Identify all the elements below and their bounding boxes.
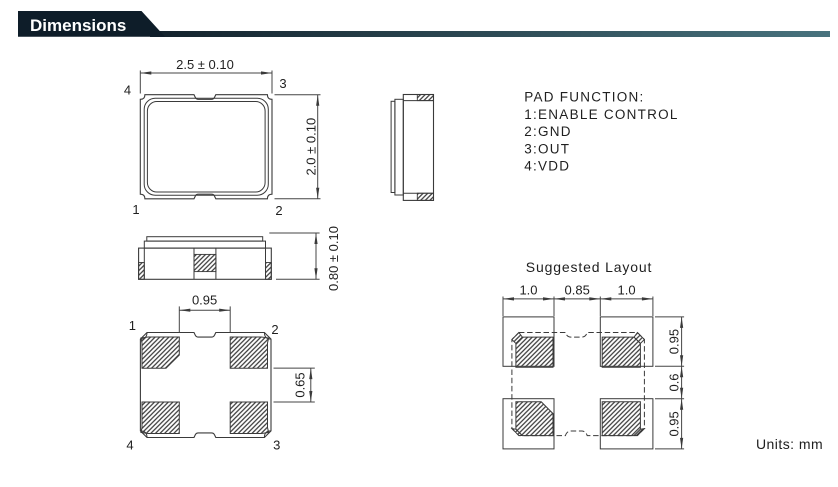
svg-text:3:OUT: 3:OUT (524, 141, 570, 156)
svg-text:0.95: 0.95 (192, 293, 217, 308)
svg-text:3: 3 (273, 438, 280, 453)
svg-text:2.0 ± 0.10: 2.0 ± 0.10 (303, 118, 318, 176)
svg-text:0.95: 0.95 (666, 329, 681, 354)
svg-text:PAD FUNCTION:: PAD FUNCTION: (524, 90, 644, 105)
svg-text:0.95: 0.95 (666, 411, 681, 436)
svg-text:Suggested Layout: Suggested Layout (526, 259, 652, 275)
svg-text:0.85: 0.85 (565, 283, 590, 298)
svg-text:2: 2 (275, 203, 282, 218)
svg-text:1.0: 1.0 (519, 283, 537, 298)
svg-text:2:GND: 2:GND (524, 124, 572, 139)
svg-text:1:ENABLE CONTROL: 1:ENABLE CONTROL (524, 107, 678, 122)
svg-text:4: 4 (124, 82, 131, 97)
svg-text:0.80 ± 0.10: 0.80 ± 0.10 (326, 226, 341, 291)
svg-text:0.6: 0.6 (666, 373, 681, 391)
svg-text:Units: mm: Units: mm (756, 436, 823, 452)
svg-text:4: 4 (126, 437, 133, 452)
svg-text:4:VDD: 4:VDD (524, 159, 570, 174)
svg-text:Dimensions: Dimensions (30, 16, 126, 35)
svg-text:3: 3 (279, 76, 286, 91)
svg-text:2: 2 (271, 322, 278, 337)
svg-text:0.65: 0.65 (292, 372, 307, 397)
svg-text:1: 1 (132, 202, 139, 217)
svg-text:2.5 ± 0.10: 2.5 ± 0.10 (176, 57, 234, 72)
svg-text:1.0: 1.0 (618, 283, 636, 298)
svg-text:1: 1 (129, 318, 136, 333)
